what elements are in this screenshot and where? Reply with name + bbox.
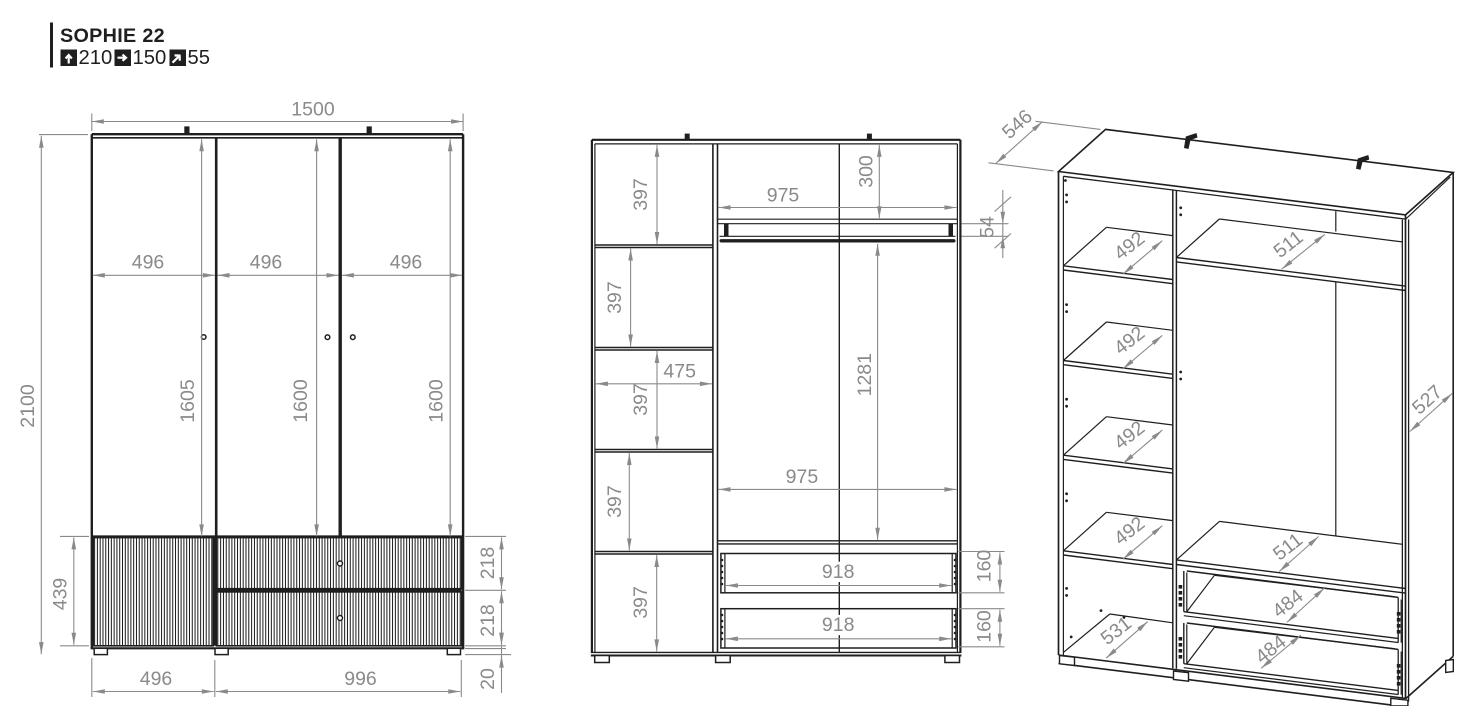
svg-text:20: 20 [477, 668, 499, 690]
svg-text:996: 996 [344, 668, 377, 690]
svg-text:210: 210 [79, 47, 113, 69]
svg-text:496: 496 [132, 252, 165, 274]
svg-text:439: 439 [49, 578, 71, 611]
svg-text:397: 397 [604, 485, 626, 518]
svg-text:160: 160 [974, 610, 996, 643]
svg-text:1600: 1600 [290, 379, 312, 423]
svg-text:1605: 1605 [177, 379, 199, 423]
svg-text:150: 150 [133, 47, 167, 69]
svg-text:397: 397 [630, 178, 652, 211]
svg-text:55: 55 [188, 47, 211, 69]
svg-text:496: 496 [140, 668, 173, 690]
svg-text:496: 496 [250, 252, 283, 274]
svg-text:975: 975 [786, 466, 819, 488]
svg-text:SOPHIE 22: SOPHIE 22 [60, 25, 165, 47]
svg-text:397: 397 [604, 281, 626, 314]
svg-text:2100: 2100 [17, 384, 39, 428]
svg-text:397: 397 [630, 586, 652, 619]
svg-text:218: 218 [477, 604, 499, 637]
svg-text:496: 496 [390, 252, 423, 274]
svg-text:1600: 1600 [425, 379, 447, 423]
svg-text:918: 918 [822, 614, 855, 636]
svg-text:54: 54 [976, 216, 998, 238]
svg-text:160: 160 [974, 550, 996, 583]
svg-text:918: 918 [822, 561, 855, 583]
svg-text:475: 475 [663, 361, 696, 383]
svg-text:218: 218 [477, 547, 499, 580]
svg-text:397: 397 [630, 383, 652, 416]
svg-text:300: 300 [855, 155, 877, 188]
svg-text:1281: 1281 [854, 353, 876, 396]
svg-text:1500: 1500 [291, 99, 335, 121]
svg-text:975: 975 [767, 185, 800, 207]
